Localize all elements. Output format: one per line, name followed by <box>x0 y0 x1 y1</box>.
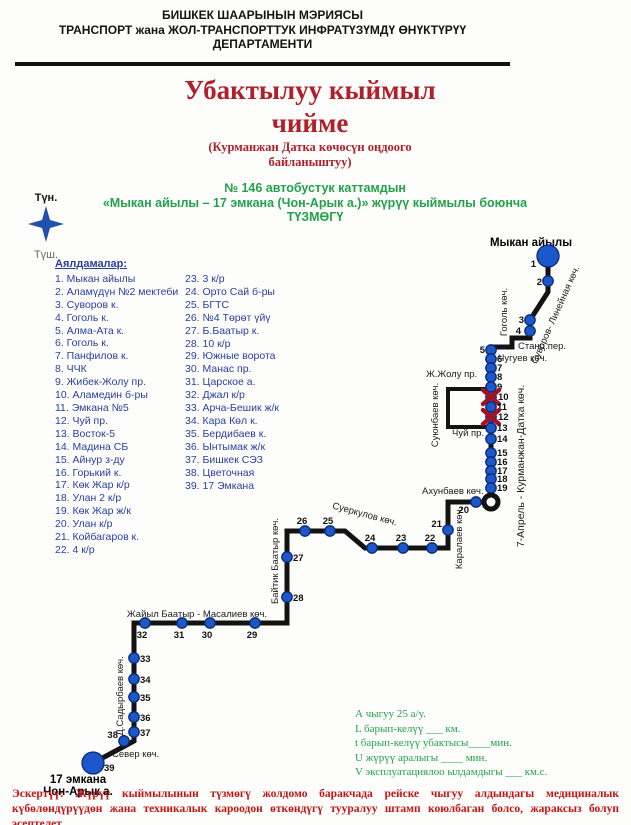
stop-dot <box>398 543 408 553</box>
stop-dot <box>129 727 139 737</box>
stop-number-label: 25 <box>323 516 334 527</box>
stop-number-label: 3 <box>519 315 524 326</box>
stop-number-label: 38 <box>107 730 118 741</box>
stop-number-label: 33 <box>140 654 151 665</box>
stop-number-label: 28 <box>293 593 304 604</box>
stop-dot <box>119 736 129 746</box>
footnote-label: Эскертүү: <box>12 788 64 800</box>
stop-number-label: 24 <box>365 533 376 544</box>
stop-dot <box>543 276 553 286</box>
stop-dot <box>367 543 377 553</box>
stop-dot <box>282 592 292 602</box>
stop-number-label: 26 <box>297 516 308 527</box>
footnote-text: Жүрүү кыймылынын түзмөгү жолдомо баракча… <box>12 788 619 825</box>
stop-dot <box>525 326 535 336</box>
legend-block: А чыгуу 25 а/у. L барып-келүү ___ км. t … <box>355 707 615 780</box>
junction-ring-icon <box>484 495 498 509</box>
stop-number-label: 23 <box>396 533 407 544</box>
stop-number-label: 13 <box>497 423 508 434</box>
stop-number-label: 27 <box>293 553 304 564</box>
footnote: Эскертүү: Жүрүү кыймылынын түзмөгү жолдо… <box>12 787 619 825</box>
legend-line-interval: U жүрүү аралыгы ____ мин. <box>355 751 615 766</box>
stop-number-label: 2 <box>537 277 542 288</box>
main-route-line <box>95 256 548 762</box>
stop-dot <box>486 382 496 392</box>
street-label-sever: Север көч. <box>112 749 159 760</box>
stop-dot <box>129 674 139 684</box>
terminal-stop-dot <box>537 245 559 267</box>
stop-number-label: 5 <box>480 345 486 356</box>
stop-dot <box>250 618 260 628</box>
stop-number-label: 37 <box>140 728 151 739</box>
street-label-suyunbaev: Суюнбаев көч. <box>430 383 441 448</box>
street-label-kurmanjan-datka: 7-Апрель - Курманжан-Датка көч. <box>515 385 527 547</box>
stop-dot <box>300 526 310 536</box>
street-label-chuguev: Чугуев көч. <box>498 353 547 364</box>
stop-dot <box>282 552 292 562</box>
stop-dot <box>325 526 335 536</box>
stop-dot <box>486 423 496 433</box>
stop-number-label: 32 <box>137 630 148 641</box>
stop-number-label: 34 <box>140 675 151 686</box>
terminal-label-start: Мыкан айылы <box>490 237 572 249</box>
street-label-sadyrbaev: Д.Садырбаев көч. <box>115 656 126 735</box>
stop-number-label: 35 <box>140 693 151 704</box>
stop-number-label: 19 <box>497 483 508 494</box>
stop-dot <box>205 618 215 628</box>
stop-dot <box>427 543 437 553</box>
stop-dot <box>129 712 139 722</box>
legend-line-speed: V эксплуатациялоо ылдамдыгы ___ км.с. <box>355 765 615 780</box>
street-label-stanc-per: Станц.пер. <box>518 341 566 352</box>
street-label-chui: Чуй пр. <box>452 428 484 439</box>
stop-number-label: 20 <box>458 505 469 516</box>
document-page: БИШКЕК ШААРЫНЫН МЭРИЯСЫ ТРАНСПОРТ жана Ж… <box>0 0 631 825</box>
stop-number-label: 4 <box>516 326 522 337</box>
stop-number-label: 36 <box>140 713 151 724</box>
stop-dot <box>177 618 187 628</box>
stop-dot <box>486 434 496 444</box>
stop-dot <box>486 402 496 412</box>
street-label-gogol: Гоголь көч. <box>499 288 510 336</box>
terminal-stop-dot <box>82 752 104 774</box>
stop-dot <box>140 618 150 628</box>
route-map: Суворов- Линейная көч. Гоголь көч. Станц… <box>0 0 631 825</box>
street-label-suerkulov: Суеркулов көч. <box>331 501 398 529</box>
stop-dot <box>471 497 481 507</box>
stop-number-label: 1 <box>531 259 537 270</box>
stop-dot <box>486 483 496 493</box>
stop-number-label: 12 <box>498 412 509 423</box>
stop-number-label: 22 <box>425 533 436 544</box>
stop-number-label: 30 <box>202 630 213 641</box>
stop-dot <box>443 525 453 535</box>
legend-line-departures: А чыгуу 25 а/у. <box>355 707 615 722</box>
stop-dot <box>525 315 535 325</box>
legend-line-length: L барып-келүү ___ км. <box>355 722 615 737</box>
stop-number-label: 31 <box>174 630 185 641</box>
stop-number-label: 14 <box>497 434 508 445</box>
stop-dot <box>129 653 139 663</box>
stop-number-label: 29 <box>247 630 258 641</box>
street-label-baytik-baatyr: Байтик Баатыр көч. <box>270 518 281 604</box>
street-label-karalaev: Каралаев көч. <box>454 507 465 569</box>
stop-number-label: 21 <box>431 519 442 530</box>
stop-number-label: 39 <box>104 763 115 774</box>
terminal-label-end-line1: 17 эмкана <box>50 774 107 786</box>
legend-line-time: t барып-келүү убактысы____мин. <box>355 736 615 751</box>
stop-dot <box>129 692 139 702</box>
street-label-akhunbaev: Ахунбаев көч. <box>422 486 484 497</box>
street-label-jzholu: Ж.Жолу пр. <box>426 369 477 380</box>
stop-dot <box>486 372 496 382</box>
